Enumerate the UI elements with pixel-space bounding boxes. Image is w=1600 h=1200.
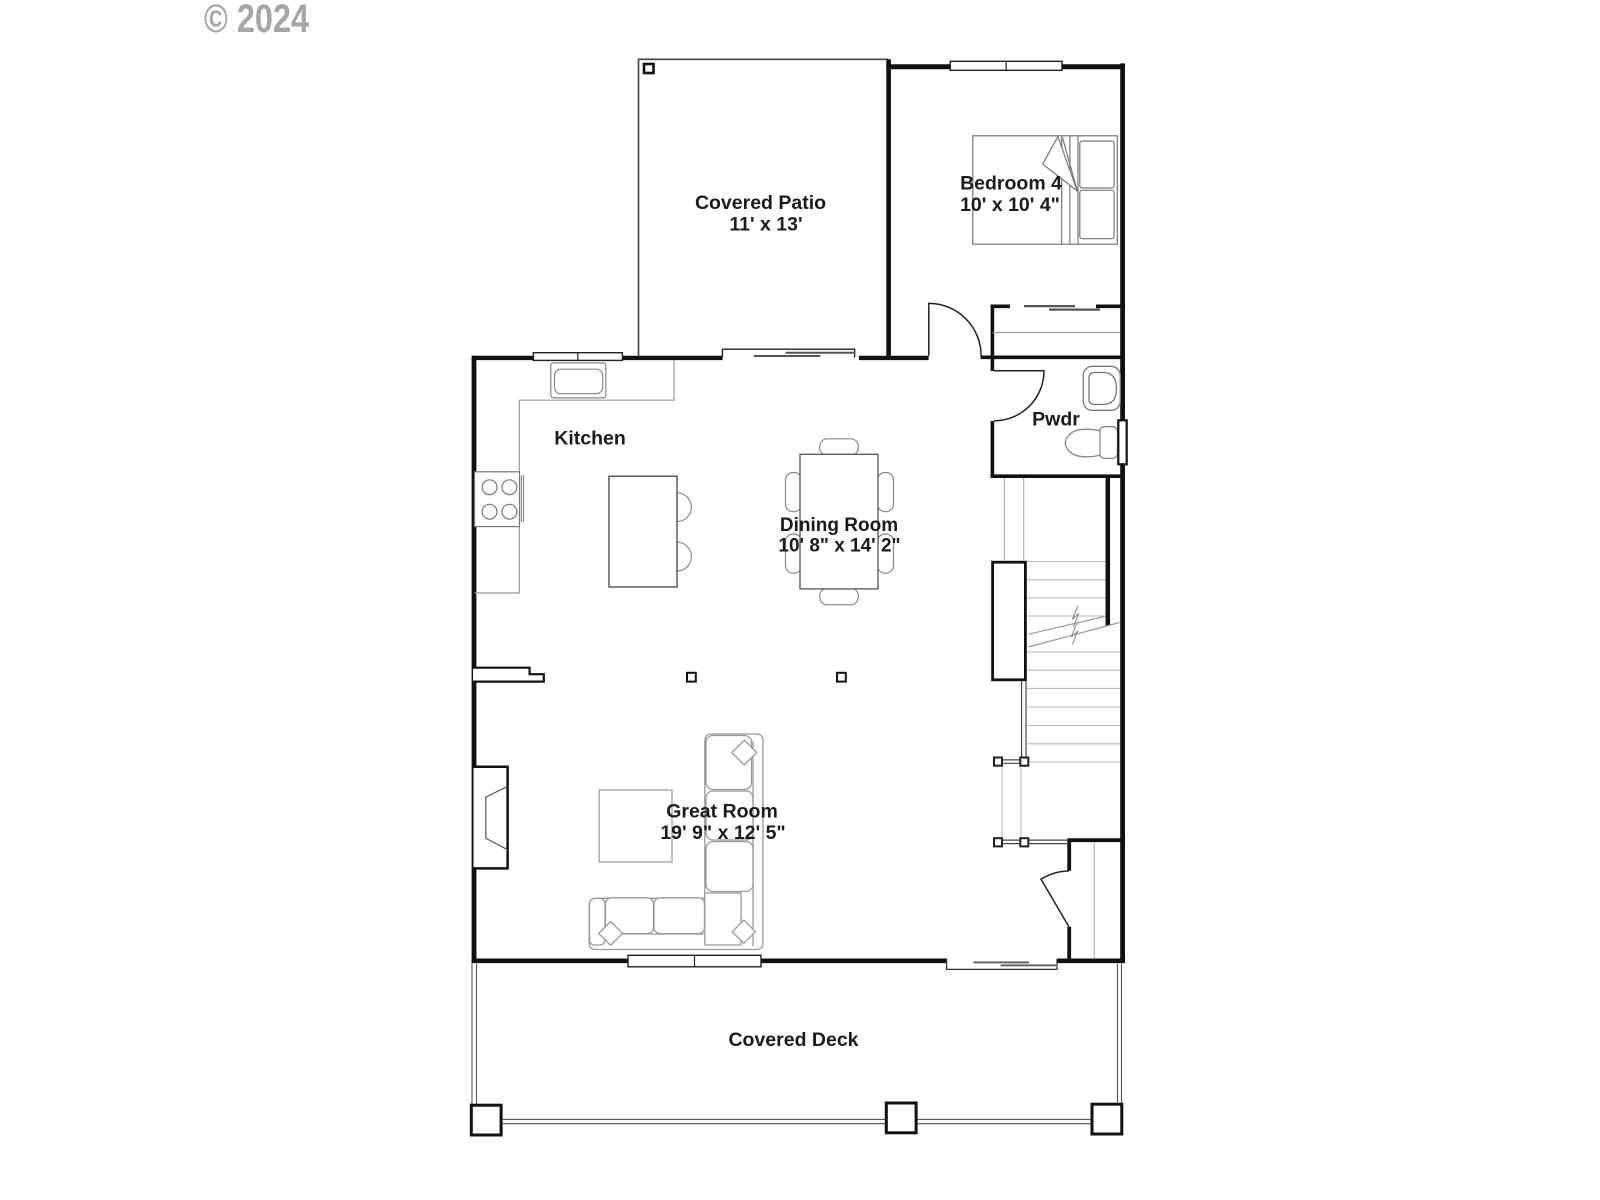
svg-text:19' 9" x 12' 5": 19' 9" x 12' 5" — [660, 822, 785, 844]
svg-text:11' x 13': 11' x 13' — [729, 214, 802, 236]
svg-text:Covered Deck: Covered Deck — [728, 1029, 858, 1051]
svg-text:10' x 10' 4": 10' x 10' 4" — [960, 194, 1060, 216]
svg-text:10' 8" x 14' 2": 10' 8" x 14' 2" — [778, 536, 900, 557]
svg-text:Covered Patio: Covered Patio — [695, 192, 826, 214]
svg-text:Pwdr: Pwdr — [1032, 409, 1080, 431]
svg-text:© 2024: © 2024 — [204, 0, 310, 41]
svg-text:Great Room: Great Room — [666, 801, 778, 823]
svg-text:Dining Room: Dining Room — [780, 515, 898, 536]
svg-text:Bedroom 4: Bedroom 4 — [960, 172, 1062, 194]
svg-text:Kitchen: Kitchen — [554, 427, 626, 449]
